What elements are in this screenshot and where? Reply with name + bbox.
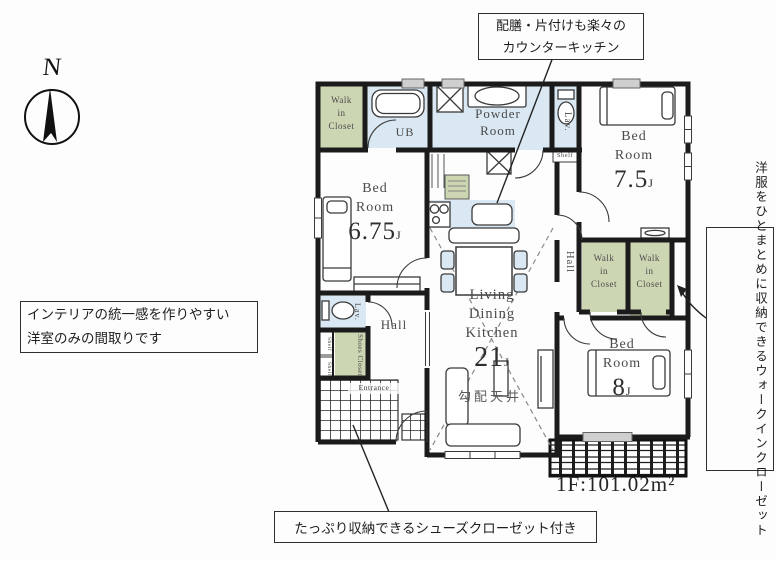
storage-icon — [487, 151, 511, 174]
callout-shoes-closet: たっぷり収納できるシューズクローゼット付き — [274, 511, 597, 543]
callout-interior: インテリアの統一感を作りやすい 洋室のみの間取りです — [20, 301, 258, 353]
room-label-entrance: Entrance — [348, 383, 400, 394]
room-size-unit: J — [396, 228, 402, 242]
room-size: 7.5 — [614, 166, 648, 193]
room-label-bedroom3: BedRoom 8J — [576, 336, 668, 401]
room-label-ldk: LivingDiningKitchen 21J — [432, 286, 552, 373]
room-label-walkin-closet-2: WalkinCloset — [582, 252, 626, 291]
dresser-bedroom2 — [354, 277, 420, 292]
label-sloped-ceiling: 勾配天井 — [450, 388, 530, 407]
room-label-walkin-closet-3: WalkinCloset — [628, 252, 671, 291]
room-label-shelf-top: Shelf — [552, 152, 578, 160]
room-size: 8 — [612, 374, 626, 401]
compass-icon — [25, 88, 79, 144]
compass-north-label: N — [33, 54, 72, 82]
callout-counter-kitchen: 配膳・片付けも楽々の カウンターキッチン — [478, 13, 644, 60]
room-size: 6.75 — [348, 218, 396, 245]
callout-walkin-closet: 洋服をひとまとめに収納できる ウォークインクローゼット — [706, 227, 774, 471]
room-size-unit: J — [648, 176, 654, 190]
kitchen-sink-icon — [472, 204, 512, 225]
room-label-lav-bottom: Lav. — [350, 297, 363, 327]
room-label-walkin-closet-1: WalkinCloset — [318, 94, 365, 133]
room-label-ub: UB — [384, 124, 426, 141]
bed-icon-bedroom1 — [600, 87, 675, 125]
dresser-bedroom1 — [641, 228, 669, 238]
stove-icon — [428, 202, 450, 227]
room-label-hall-middle: Hall — [558, 238, 577, 286]
sofa-icon — [446, 368, 520, 446]
room-label-shelf-1: Shelf — [318, 334, 332, 354]
kitchen-counter — [449, 228, 519, 243]
room-label-bedroom2: BedRoom 6.75J — [328, 180, 422, 245]
room-size: 21 — [474, 342, 504, 373]
entrance-hatch-step — [402, 414, 425, 440]
room-label-shoes-closet: Shoes Closet — [337, 334, 365, 377]
room-label-hall-entry: Hall — [368, 316, 420, 335]
floor-area-label: 1F:101.02m² — [556, 472, 675, 497]
room-label-powder-room: PowderRoom — [452, 106, 544, 140]
porch-hatch — [550, 440, 686, 476]
room-size-unit: J — [504, 355, 510, 369]
floorplan-canvas: N WalkinCloset UB PowderRoom Lav. Shelf … — [0, 0, 776, 561]
room-label-lav-top: Lav. — [558, 100, 574, 144]
room-label-shelf-2: Shelf — [318, 359, 332, 379]
room-size-unit: J — [626, 384, 632, 398]
room-label-bedroom1: BedRoom 7.5J — [590, 128, 678, 193]
